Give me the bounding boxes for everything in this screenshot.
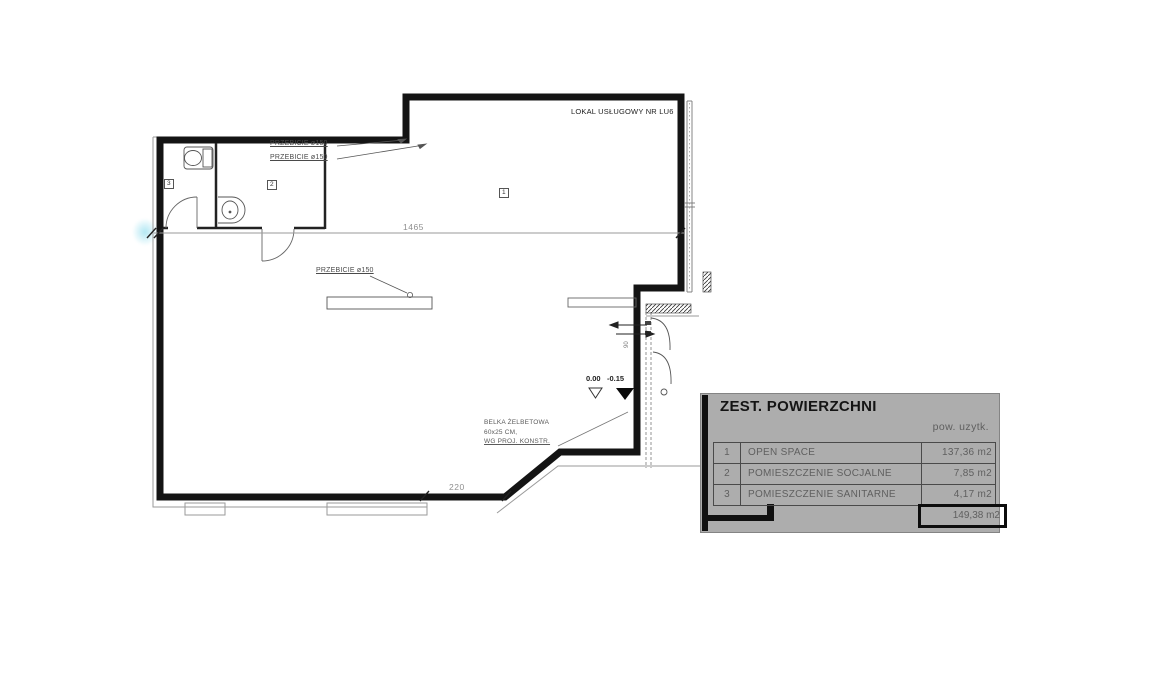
panel-wall-left — [702, 395, 708, 531]
panel-wall-bottom — [702, 515, 774, 521]
elevation-marker-open — [589, 388, 602, 398]
row-name: OPEN SPACE — [741, 443, 922, 463]
beam-note-line3: WG PROJ. KONSTR. — [484, 437, 550, 447]
row-area: 4,17 m2 — [922, 485, 997, 505]
row-name: POMIESZCZENIE SANITARNE — [741, 485, 922, 505]
beam-outline — [327, 297, 432, 309]
penetration-label-2: PRZEBICIE ø150 — [270, 154, 328, 161]
panel-wall-stub — [767, 504, 774, 521]
door-width-dim: 90 — [624, 341, 630, 348]
sink-icon — [218, 197, 245, 223]
row-number: 2 — [714, 464, 741, 484]
elevation-marker-filled — [616, 388, 634, 400]
room-tag-open-space: 1 — [499, 188, 509, 198]
table-row: 2 POMIESZCZENIE SOCJALNE 7,85 m2 — [714, 463, 995, 484]
elevation-zero-label: 0.00 — [586, 374, 601, 383]
hatched-column-section — [703, 272, 711, 292]
toilet-icon — [184, 147, 213, 169]
hatched-wall-section — [646, 304, 691, 313]
penetration-label-3: PRZEBICIE ø150 — [316, 267, 374, 274]
row-area: 7,85 m2 — [922, 464, 997, 484]
room-tag-social: 2 — [267, 180, 277, 190]
area-summary-panel: ZEST. POWIERZCHNI pow. uzytk. 1 OPEN SPA… — [700, 393, 1000, 533]
landing-bar — [568, 298, 636, 307]
table-row: 1 OPEN SPACE 137,36 m2 — [714, 443, 995, 463]
beam-note-line1: BELKA ŻELBETOWA — [484, 418, 550, 428]
row-number: 3 — [714, 485, 741, 505]
table-row: 3 POMIESZCZENIE SANITARNE 4,17 m2 — [714, 484, 995, 505]
beam-note: BELKA ŻELBETOWA 60x25 CM, WG PROJ. KONST… — [484, 418, 550, 447]
row-area: 137,36 m2 — [922, 443, 997, 463]
dimension-220: 220 — [449, 482, 465, 492]
panel-column-header: pow. uzytk. — [933, 421, 989, 433]
row-name: POMIESZCZENIE SOCJALNE — [741, 464, 922, 484]
penetration-mid — [370, 276, 413, 298]
unit-label: LOKAL USŁUGOWY NR LU6 — [571, 107, 674, 116]
beam-note-leader — [558, 412, 628, 446]
entrance-door-symbol — [645, 318, 671, 395]
plinth-opening — [185, 503, 225, 515]
penetration-label-1: PRZEBICIE ø150 — [270, 140, 328, 147]
elevation-minus-label: -0.15 — [607, 374, 624, 383]
total-area-box: 149,38 m2 — [918, 504, 1007, 528]
plinth-opening — [327, 503, 427, 515]
beam-note-line2: 60x25 CM, — [484, 428, 550, 438]
dimension-ticks — [147, 228, 685, 501]
floorplan-page: LOKAL USŁUGOWY NR LU6 PRZEBICIE ø150 PRZ… — [0, 0, 1164, 677]
room-tag-sanitary: 3 — [164, 179, 174, 189]
area-table: 1 OPEN SPACE 137,36 m2 2 POMIESZCZENIE S… — [713, 442, 996, 506]
dimension-1465: 1465 — [403, 222, 424, 232]
panel-title: ZEST. POWIERZCHNI — [720, 398, 877, 415]
floor-plan-linework — [0, 0, 1164, 677]
row-number: 1 — [714, 443, 741, 463]
